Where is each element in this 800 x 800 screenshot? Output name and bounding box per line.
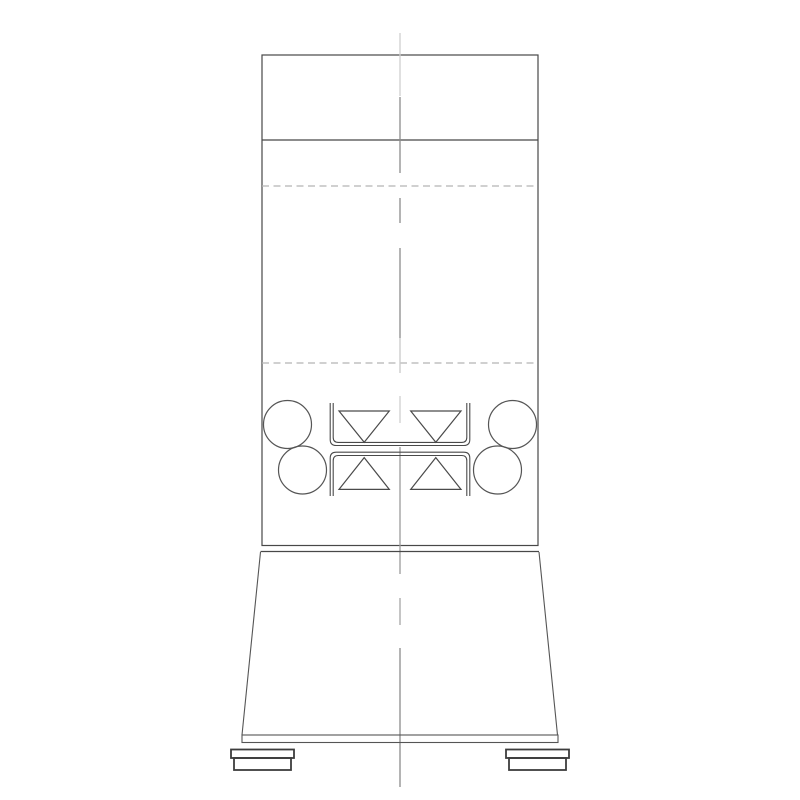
- drawing-sheet: [0, 0, 800, 800]
- roller-circle-upper-left: [264, 401, 312, 449]
- flow-triangle-lower-left: [339, 458, 389, 490]
- left-foot-block: [234, 758, 291, 770]
- drawing-canvas: [0, 0, 800, 800]
- left-foot-top-plate: [231, 750, 294, 759]
- flow-triangle-upper-right: [411, 411, 461, 442]
- hopper-right-slant-edge: [539, 552, 558, 735]
- roller-circle-lower-left: [279, 446, 327, 494]
- right-foot-block: [509, 758, 566, 770]
- roller-circle-upper-right: [489, 401, 537, 449]
- hopper-left-slant-edge: [242, 552, 261, 735]
- right-foot-top-plate: [506, 750, 569, 759]
- flow-triangle-lower-right: [411, 458, 461, 490]
- roller-circle-lower-right: [474, 446, 522, 494]
- flow-triangle-upper-left: [339, 411, 389, 442]
